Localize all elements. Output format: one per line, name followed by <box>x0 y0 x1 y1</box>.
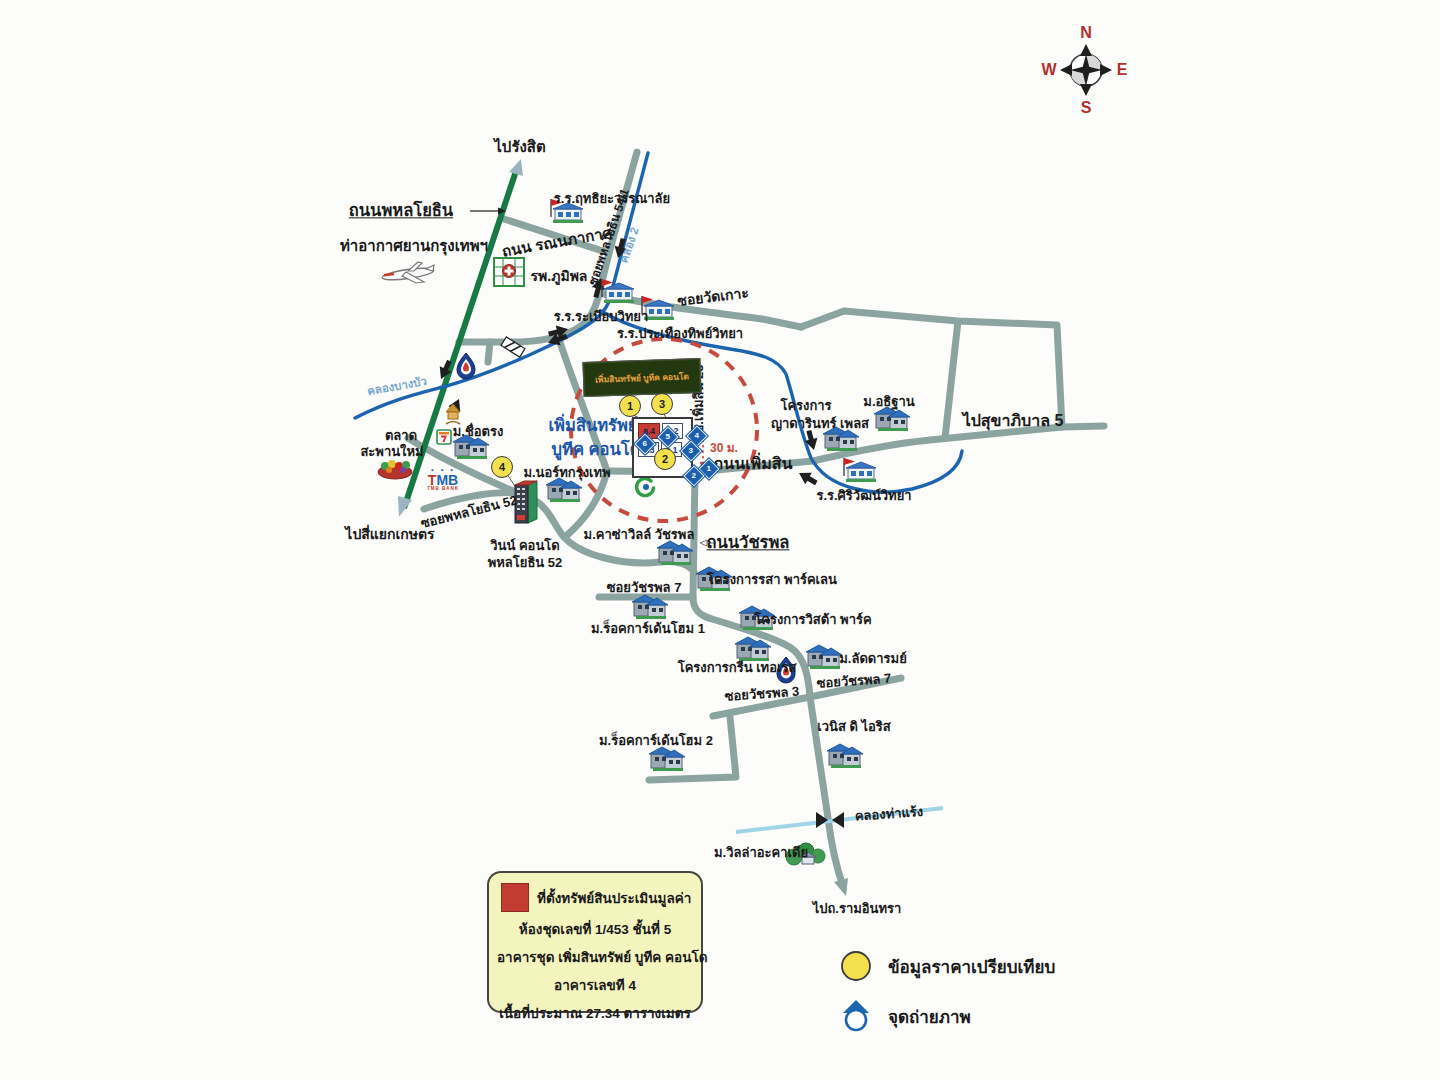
village-icon <box>657 541 693 565</box>
prathuangthip-school-label: ร.ร.ประเทืองทิพย์วิทยา <box>617 327 743 341</box>
camera-point-number: 1 <box>707 464 711 473</box>
village-icon <box>806 645 842 669</box>
subject-location-swatch <box>501 883 529 912</box>
rasa-parklane-label: โครงการรสา พาร์คเลน <box>707 573 837 587</box>
rabiab-school-label: ร.ร.ระเบียบวิทยา <box>554 310 649 324</box>
village-icon <box>546 478 582 502</box>
bhumibol-hospital-label: รพ.ภูมิพล <box>531 269 588 284</box>
green-terrace-label: โครงการกรีน เทอเรส <box>678 661 797 675</box>
airplane-icon <box>382 262 435 283</box>
village-icon <box>649 747 685 771</box>
seven-eleven-icon <box>437 430 451 444</box>
market-icon <box>378 460 412 479</box>
mu-athithan-label: ม.อธิฐาน <box>863 395 914 409</box>
road-ptt-stub <box>488 342 490 362</box>
village-icon <box>827 744 863 768</box>
dest-rangsit: ไปรังสิต <box>494 139 545 155</box>
tmb-wordmark: TMB <box>427 473 459 487</box>
compass-w: W <box>1041 61 1056 79</box>
yadarin-place-label-1: โครงการ <box>780 399 831 413</box>
siriwat-school-label: ร.ร.ศิริวัฒน์วิทยา <box>816 489 911 503</box>
dest-sukhaphiban-5: ไปสุขาภิบาล 5 <box>963 413 1064 430</box>
camera-point-number: 4 <box>695 431 699 440</box>
condo-banner-text: เพิ่มสินทรัพย์ บูทีค คอนโด <box>595 369 689 386</box>
school-icon <box>844 458 876 482</box>
camera-point-number: 3 <box>689 446 693 455</box>
mu-chuetrong-label: ม.ชื่อตรง <box>453 425 504 439</box>
distance-30m-label: 30 ม. <box>710 442 738 455</box>
tmb-bank-text: TMB BANK <box>427 487 459 492</box>
saphanmai-market-label-1: ตลาด <box>385 429 417 443</box>
camera-point-legend-icon <box>840 998 874 1034</box>
villa-acadia-label: ม.วิลล่าอะคาเดีย <box>714 846 808 860</box>
phoemsin-road-label: ถนนเพิ่มสิน <box>714 456 793 473</box>
saphanmai-market-label-2: สะพานใหม่ <box>360 445 423 459</box>
wynn-condo-label-1: วินน์ คอนโด <box>490 539 560 553</box>
venice-di-iris-label: เวนิส ดิ ไอริส <box>817 720 891 734</box>
legend-box: ที่ตั้งทรัพย์สินประเมินมูลค่า ห้องชุดเลข… <box>487 871 703 1013</box>
price-point-legend-label: ข้อมูลราคาเปรียบเทียบ <box>888 953 1055 980</box>
legend-line: อาคารชุด เพิ่มสินทรัพย์ บูทีค คอนโด <box>497 946 693 968</box>
vista-park-label: โครงการวิสต้า พาร์ค <box>754 613 871 627</box>
compass-rose: N E S W <box>1036 18 1136 122</box>
watcharaphon-road-end-arrow <box>834 878 848 896</box>
property-name-line1: เพิ่มสินทรัพย์ <box>548 417 637 434</box>
compass-s: S <box>1081 99 1092 117</box>
legend-symbols: ข้อมูลราคาเปรียบเทียบ จุดถ่ายภาพ <box>840 950 1055 1050</box>
watcharaphon-road-label: ถนนวัชรพล <box>707 534 790 551</box>
condo-photo-banner: เพิ่มสินทรัพย์ บูทีค คอนโด <box>582 358 701 397</box>
yadarin-place-label-2: ญาดารินทร์ เพลส <box>771 417 869 431</box>
soi-watcharaphon-7-label-a: ซอยวัชรพล 7 <box>607 581 682 595</box>
ptt-logo-icon <box>637 479 654 496</box>
legend-line: ห้องชุดเลขที่ 1/453 ชั้นที่ 5 <box>497 918 693 940</box>
price-point-4: 4 <box>491 456 513 478</box>
tmb-bank-icon: ✦ ✦ ✦ TMB TMB BANK <box>427 468 459 492</box>
property-name-line2: บูทีค คอนโด <box>552 441 641 458</box>
village-icon <box>874 407 910 431</box>
camera-point-number: 6 <box>643 439 647 448</box>
tharaeng-bridge-mark <box>832 812 844 828</box>
price-point-3: 3 <box>651 393 673 415</box>
dest-ramintra: ไปถ.รามอินทรา <box>813 902 902 916</box>
legend-line: เนื้อที่ประมาณ 27.34 ตารางเมตร <box>497 1002 693 1024</box>
mu-laddarom-label: ม.ลัดดารมย์ <box>839 652 907 666</box>
wynn-condo-label-2: พหลโยธิน 52 <box>488 556 563 570</box>
camera-point-number: 2 <box>692 471 696 480</box>
legend-line: อาคารเลขที 4 <box>497 974 693 996</box>
phahonyothin-north-arrow <box>509 159 523 176</box>
legend-line: ที่ตั้งทรัพย์สินประเมินมูลค่า <box>537 887 691 909</box>
wynn-tower-icon <box>515 481 537 523</box>
rock-garden-home-2-label: ม.ร็อคการ์เด้นโฮม 2 <box>599 734 713 748</box>
price-point-legend-icon <box>840 950 874 982</box>
price-point-1: 1 <box>619 395 641 417</box>
compass-n: N <box>1080 24 1092 42</box>
rock-garden-home-1-label: ม.ร็อคการ์เด้นโฮม 1 <box>591 622 705 636</box>
hospital-icon <box>494 258 524 286</box>
camera-point-legend-label: จุดถ่ายภาพ <box>888 1003 971 1030</box>
school-icon <box>602 279 634 303</box>
price-point-2: 2 <box>654 448 676 470</box>
mu-casa-ville-label: ม.คาซ่าวิลล์ วัชรพล <box>584 528 695 542</box>
camera-point-number: 5 <box>666 432 670 441</box>
ptt-station-icon <box>457 353 475 379</box>
dest-kaset-intersection: ไปสี่แยกเกษตร <box>345 527 434 542</box>
compass-e: E <box>1117 61 1128 79</box>
map-canvas: เพิ่มสินทรัพย์ บูทีค คอนโด อ.4อ.2อ.3อ.1 … <box>0 0 1440 1080</box>
mu-north-bangkok-label: ม.นอร์ทกรุงเทพ <box>523 466 610 480</box>
phahonyothin-road-label: ถนนพหลโยธิน <box>349 202 453 219</box>
bangkok-airport-label: ท่าอากาศยานกรุงเทพฯ <box>340 238 488 254</box>
village-icon <box>735 637 771 661</box>
